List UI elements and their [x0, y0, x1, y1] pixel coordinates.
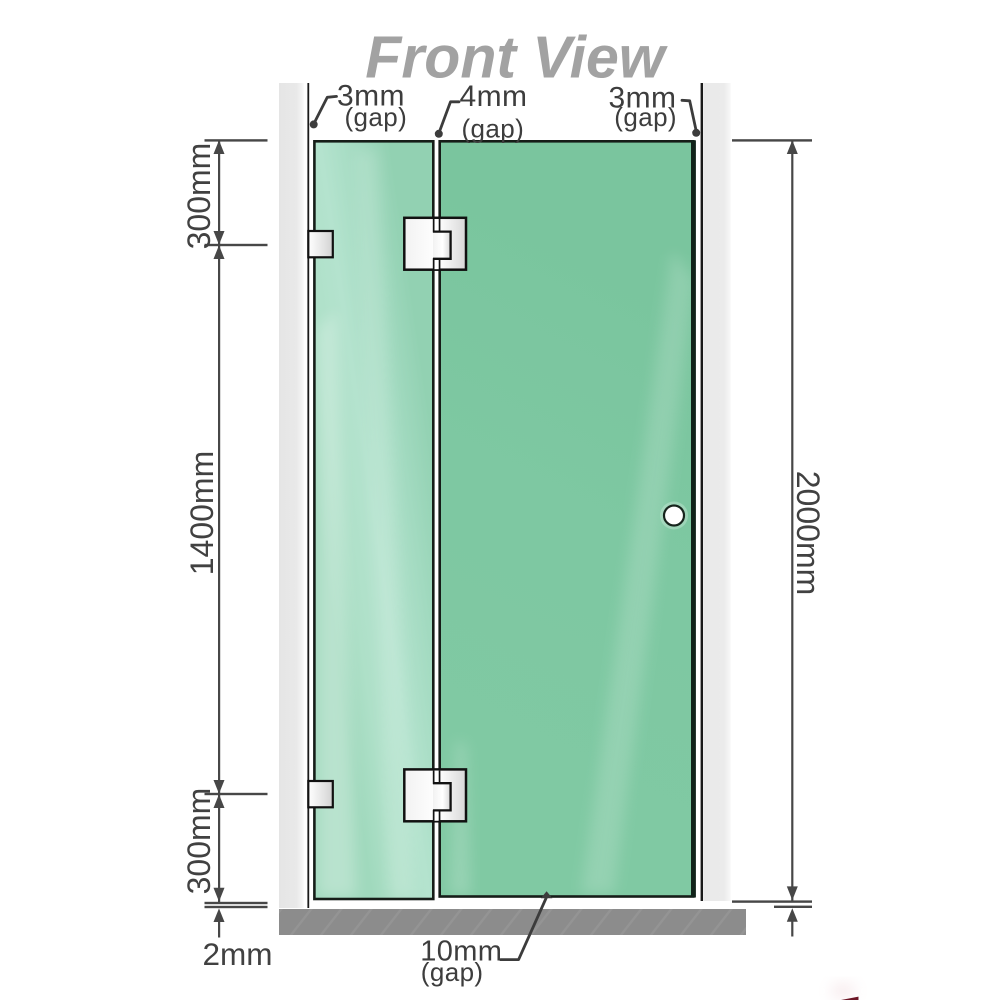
svg-text:2000mm: 2000mm	[790, 471, 826, 596]
svg-text:1400mm: 1400mm	[184, 451, 220, 576]
svg-text:(gap): (gap)	[614, 102, 677, 132]
svg-text:2mm: 2mm	[203, 936, 273, 972]
svg-text:(gap): (gap)	[421, 957, 484, 987]
svg-text:(gap): (gap)	[345, 102, 408, 132]
svg-text:(gap): (gap)	[462, 114, 525, 144]
svg-text:300mm: 300mm	[181, 143, 217, 250]
svg-text:4mm: 4mm	[460, 80, 528, 113]
svg-text:300mm: 300mm	[181, 788, 217, 895]
